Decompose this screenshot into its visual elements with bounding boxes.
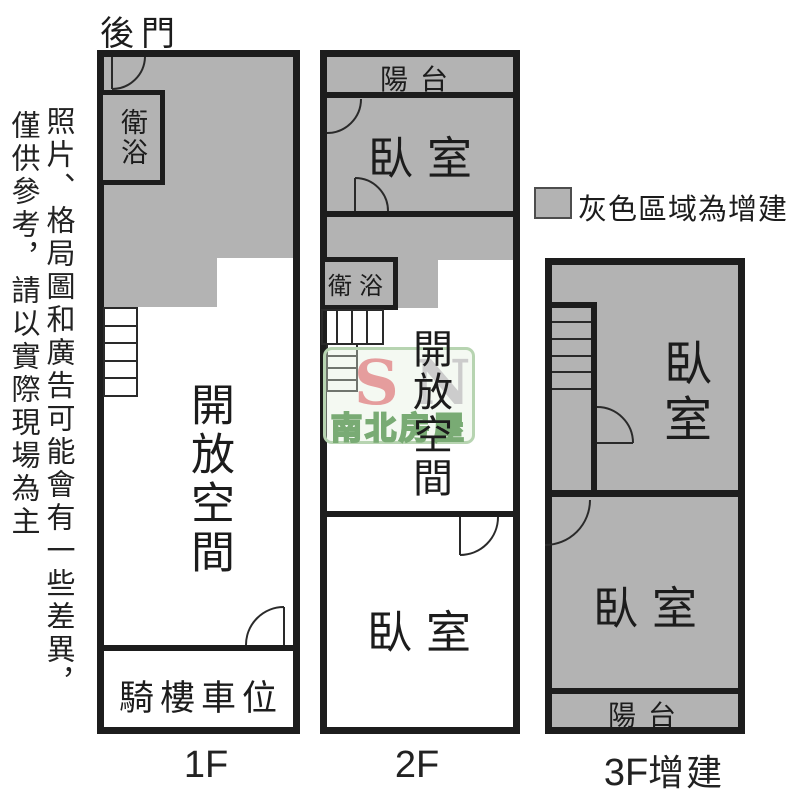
door-2f-balcony (327, 99, 361, 133)
disclaimer-column-right: 照片、格局圖和廣告可能會有一些差異， (42, 106, 75, 746)
floor-2f-balcony-label: 陽台 (380, 58, 460, 98)
floor-3f-balcony-label: 陽台 (608, 694, 688, 734)
floor-2f-open-space-label: 開放空間 (400, 328, 458, 500)
floor-3f-name: 3F增建 (604, 744, 724, 793)
door-3f-bedroom-upper (597, 407, 633, 443)
door-2f-bedroom-lower (460, 517, 498, 555)
floor-1f-parking-label: 騎樓車位 (119, 670, 283, 721)
disclaimer-column-left: 僅供參考，請以實際現場為主 (7, 110, 40, 560)
stairs-1f-outline (104, 308, 137, 396)
floor-1f-open-space-label: 開放空間 (176, 382, 240, 578)
stairs-3f-treads (552, 322, 591, 389)
floor-3f-name-prefix: 3F (604, 752, 648, 793)
door-1f-back (112, 57, 145, 89)
door-1f-front (246, 607, 284, 645)
stairs-1f-treads (104, 326, 137, 378)
door-3f-bedroom-lower (545, 500, 590, 545)
back-door-label: 後門 (100, 6, 182, 55)
legend-label: 灰色區域為增建 (578, 186, 788, 228)
stairs-2f-upper-treads (337, 310, 367, 344)
floorplan-page: 照片、格局圖和廣告可能會有一些差異， 僅供參考，請以實際現場為主 後門 灰色區域… (0, 0, 800, 793)
floor-2f-bedroom-upper-label: 臥室 (368, 122, 486, 187)
floor-1f-name: 1F (184, 744, 228, 787)
floor-3f-name-suffix: 增建 (648, 753, 724, 793)
floor-2f-bedroom-lower-label: 臥室 (367, 596, 485, 661)
floor-2f-name: 2F (395, 744, 439, 787)
floor-3f-bedroom-upper-label: 臥室 (648, 338, 718, 450)
floor-3f-bedroom-lower-label: 臥室 (593, 572, 711, 637)
